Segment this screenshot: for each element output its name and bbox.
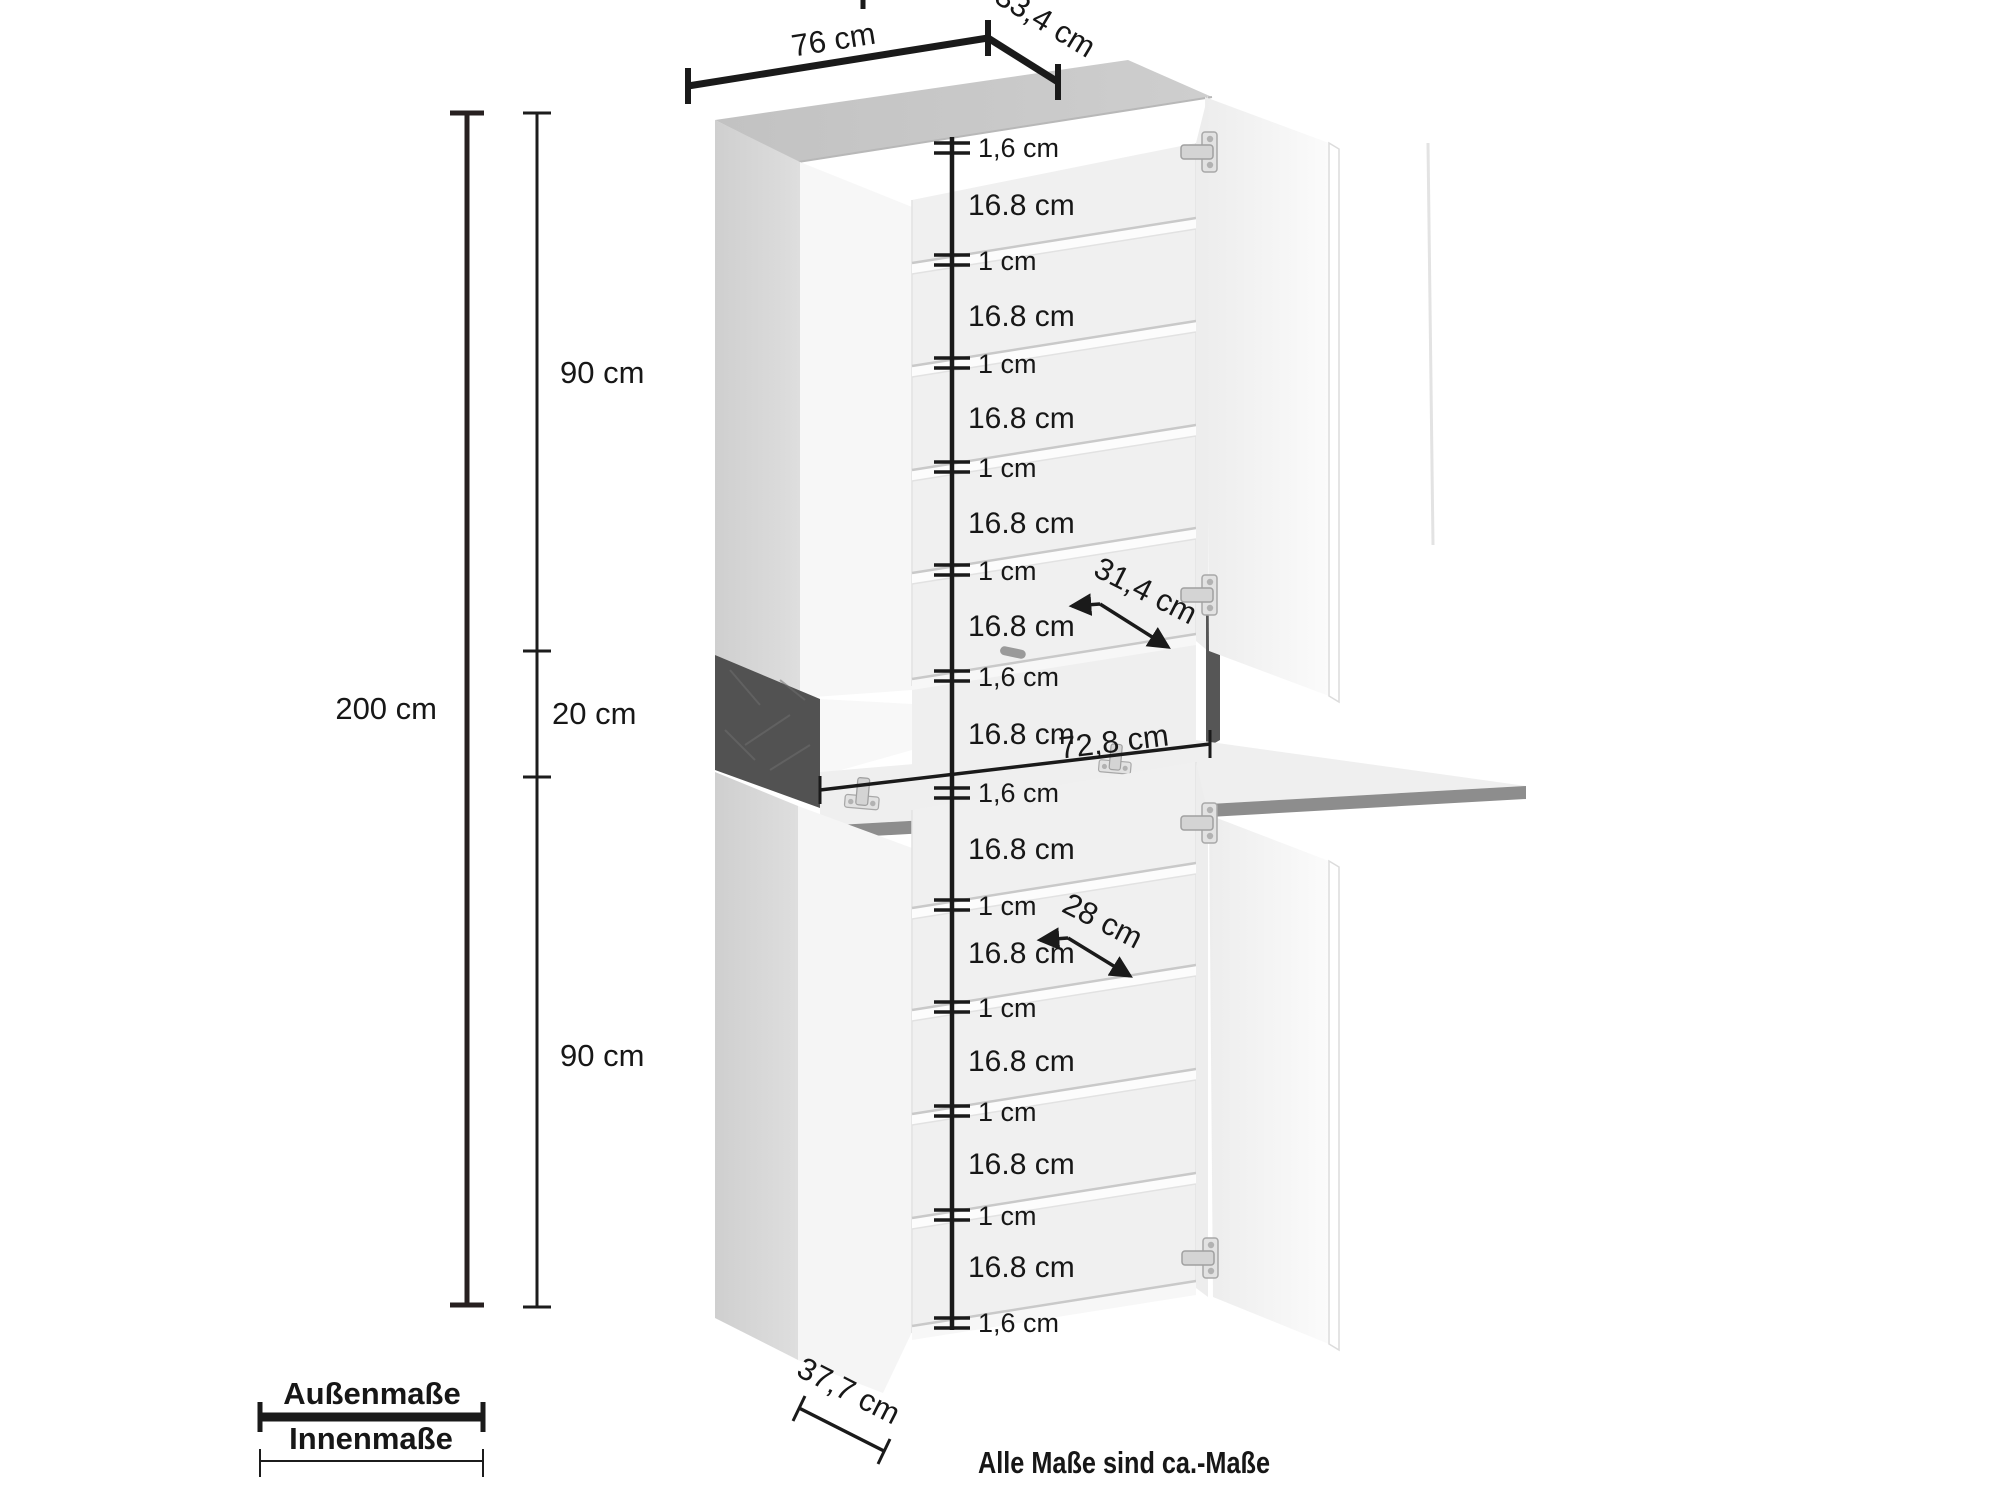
chain-label: 16.8 cm: [968, 402, 1075, 435]
chain-label: 16.8 cm: [968, 1251, 1075, 1284]
cabinet-dimension-diagram: 76 cm 33,4 cm 200 cm 90 cm 20 cm 90 cm 3…: [0, 0, 2000, 1500]
chain-label: 16.8 cm: [968, 300, 1075, 333]
chain-label: 1,6 cm: [978, 778, 1059, 808]
chain-label: 1,6 cm: [978, 662, 1059, 692]
chain-label: 16.8 cm: [968, 189, 1075, 222]
chain-label: 16.8 cm: [968, 833, 1075, 866]
footnote: Alle Maße sind ca.-Maße: [978, 1445, 1270, 1480]
measure-chain-labels: 1,6 cm 16.8 cm 1 cm 16.8 cm 1 cm 16.8 cm…: [968, 133, 1075, 1338]
chain-label: 16.8 cm: [968, 507, 1075, 540]
chain-label: 1 cm: [978, 891, 1037, 921]
chain-label: 1,6 cm: [978, 1308, 1059, 1338]
chain-label: 16.8 cm: [968, 610, 1075, 643]
lower-left-panel: [715, 772, 798, 1360]
total-height-label: 200 cm: [335, 691, 437, 726]
upper-left-panel: [715, 120, 800, 698]
chain-label: 1 cm: [978, 993, 1037, 1023]
chain-label: 16.8 cm: [968, 937, 1075, 970]
chain-label: 16.8 cm: [968, 1148, 1075, 1181]
legend-outer-label: Außenmaße: [283, 1376, 460, 1411]
lower-right-door-open: [1209, 815, 1329, 1344]
lower-right-door-edge: [1329, 861, 1339, 1350]
lower-height-label: 90 cm: [560, 1038, 644, 1073]
chain-label: 1 cm: [978, 556, 1037, 586]
diagram-canvas: 76 cm 33,4 cm 200 cm 90 cm 20 cm 90 cm 3…: [0, 0, 2000, 1500]
legend-inner-label: Innenmaße: [289, 1421, 453, 1456]
chain-label: 16.8 cm: [968, 1045, 1075, 1078]
upper-right-door-open: [1205, 97, 1329, 696]
middle-inner-left-wall: [820, 699, 912, 776]
total-height-line: [450, 113, 484, 1305]
chain-label: 1 cm: [978, 453, 1037, 483]
chain-label: 1 cm: [978, 349, 1037, 379]
chain-label: 1,6 cm: [978, 133, 1059, 163]
upper-height-label: 90 cm: [560, 355, 644, 390]
middle-height-label: 20 cm: [552, 696, 636, 731]
chain-label: 1 cm: [978, 246, 1037, 276]
chain-label: 1 cm: [978, 1201, 1037, 1231]
chain-label: 16.8 cm: [968, 718, 1075, 751]
cabinet-top-face: [715, 60, 1212, 162]
chain-label: 1 cm: [978, 1097, 1037, 1127]
lower-left-door-closed: [798, 806, 912, 1393]
legend: Außenmaße Innenmaße: [260, 1376, 483, 1477]
upper-right-door-edge: [1329, 143, 1339, 702]
depth-label: 33,4 cm: [989, 0, 1102, 64]
upper-inner-left-wall: [800, 162, 912, 698]
